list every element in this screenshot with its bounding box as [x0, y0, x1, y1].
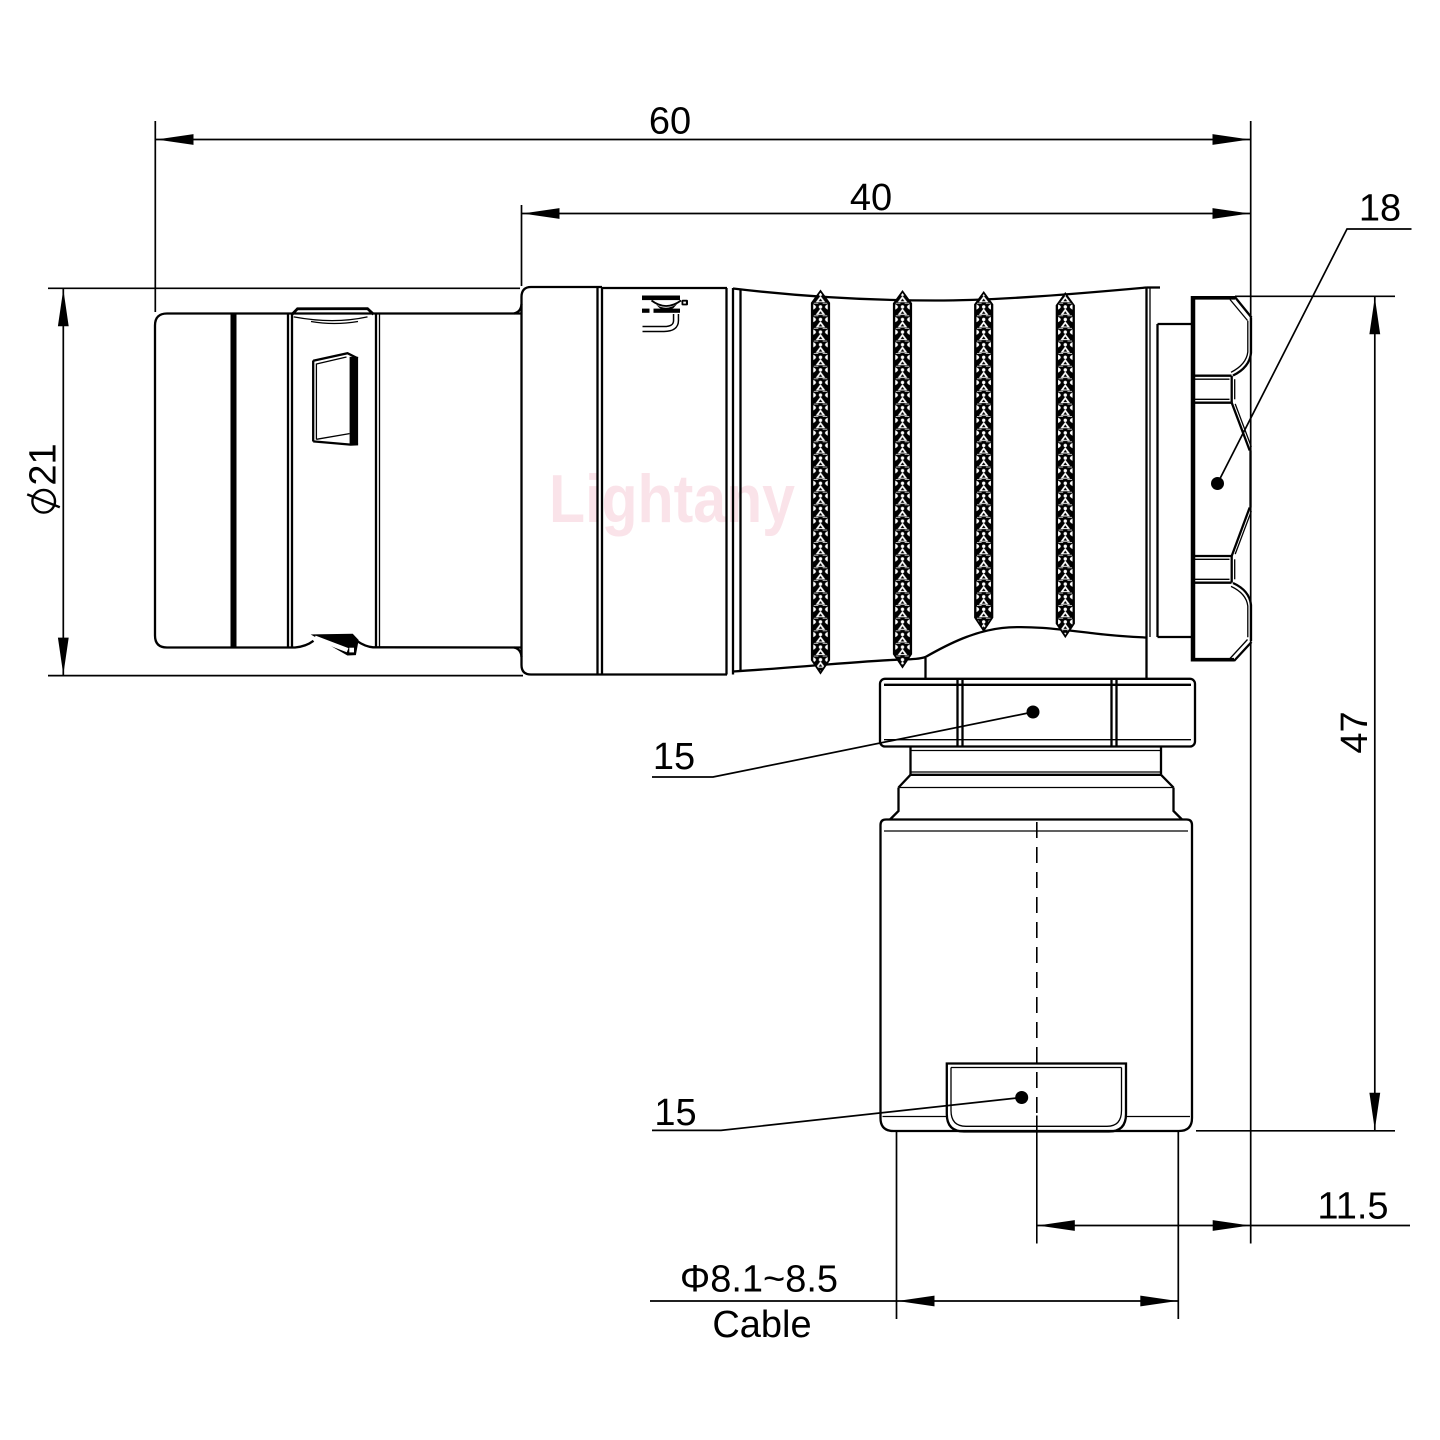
svg-text:21: 21: [23, 443, 65, 485]
svg-text:18: 18: [1359, 188, 1401, 230]
svg-text:40: 40: [850, 177, 892, 219]
svg-text:Cable: Cable: [712, 1304, 811, 1346]
svg-text:47: 47: [1334, 711, 1376, 753]
svg-text:11.5: 11.5: [1317, 1186, 1388, 1228]
svg-text:60: 60: [649, 101, 691, 143]
svg-text:15: 15: [654, 1092, 696, 1134]
svg-text:Lightany: Lightany: [549, 461, 795, 537]
svg-text:Φ8.1~8.5: Φ8.1~8.5: [680, 1259, 838, 1301]
svg-text:15: 15: [653, 736, 695, 778]
